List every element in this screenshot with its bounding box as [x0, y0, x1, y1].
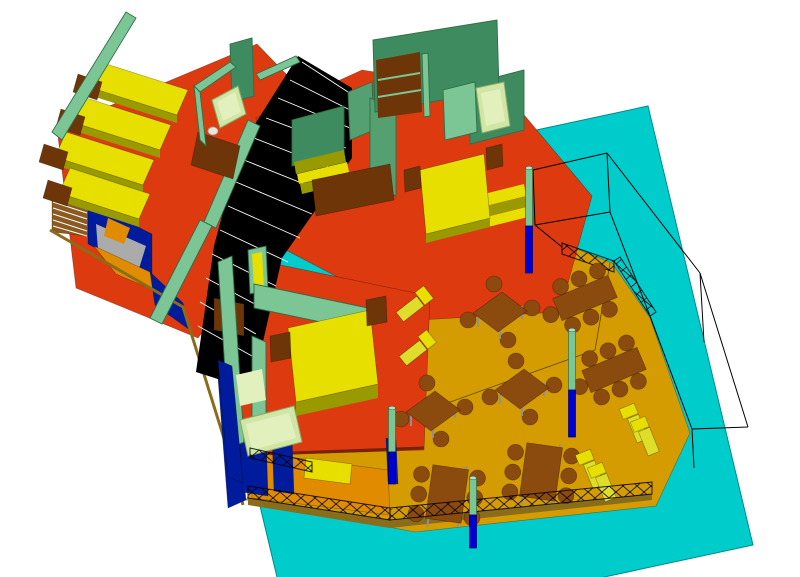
stool [433, 431, 449, 447]
column [389, 406, 396, 484]
stool [508, 353, 524, 369]
column [470, 476, 477, 548]
stool [522, 409, 538, 425]
stool [546, 377, 562, 393]
column-cap [389, 406, 396, 410]
toilet [208, 127, 218, 135]
column-green-part [526, 168, 533, 226]
column-cap [470, 476, 477, 480]
column-blue-part [569, 390, 576, 437]
3d-model-canvas [0, 0, 800, 577]
model-viewport [0, 0, 800, 577]
stool [457, 399, 473, 415]
stool [524, 300, 540, 316]
nightstand [404, 166, 421, 192]
bath-mat [236, 369, 266, 406]
column-blue-part [526, 226, 533, 273]
column-blue-part [389, 452, 396, 484]
stool [460, 312, 476, 328]
stool [500, 332, 516, 348]
column [569, 328, 576, 437]
column-green-part [470, 478, 477, 515]
column-green-part [569, 330, 576, 390]
column-blue-part [470, 515, 477, 548]
column-cap [569, 328, 576, 332]
column-cap [526, 166, 533, 170]
nightstand [270, 332, 291, 362]
suite-wall [443, 82, 477, 140]
nightstand [486, 144, 503, 170]
column [526, 166, 533, 273]
stool [419, 375, 435, 391]
nightstand [366, 296, 387, 326]
wardrobe [376, 52, 422, 118]
stool [486, 276, 502, 292]
stool [482, 389, 498, 405]
column-green-part [389, 408, 396, 452]
